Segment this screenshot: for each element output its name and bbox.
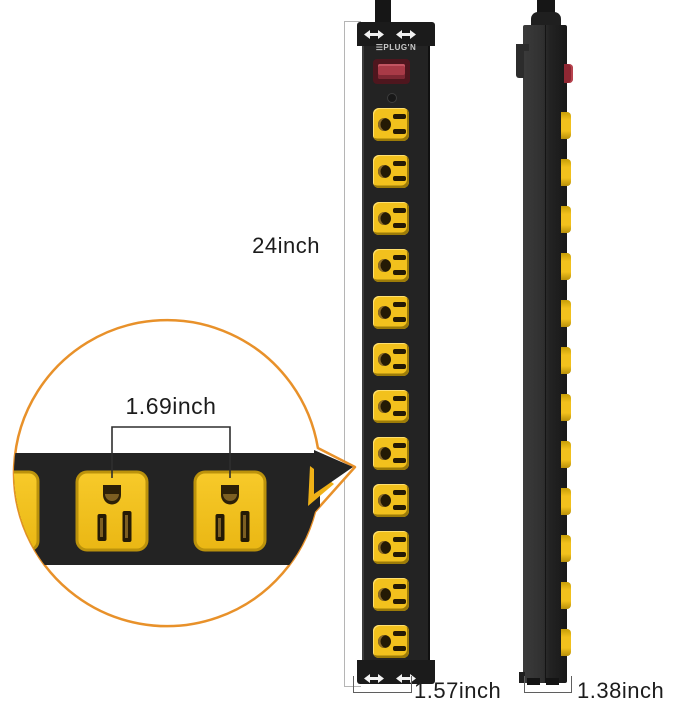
callout-outlet	[195, 472, 265, 550]
callout-strip-band	[0, 453, 320, 565]
outlet-zoom-callout: 1.69inch	[0, 0, 679, 705]
product-dimension-image: 24inch ☰PLUG'N 1.57inch 1.38inch	[0, 0, 679, 705]
callout-outlet	[77, 472, 147, 550]
outlet-spacing-label: 1.69inch	[126, 393, 217, 419]
callout-outlet-partial	[0, 472, 38, 550]
